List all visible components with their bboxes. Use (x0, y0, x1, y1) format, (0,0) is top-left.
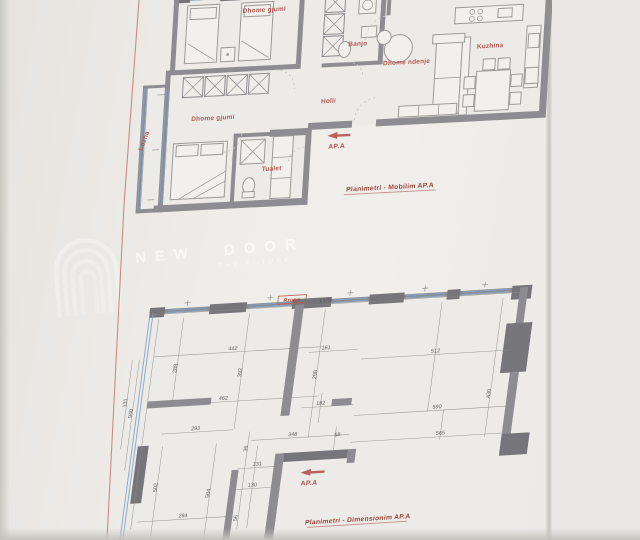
floor-plan-photo: NEW DOOR THE FUTURE (0, 0, 640, 540)
room-label: Holli (321, 98, 336, 106)
svg-text:Rruga: Rruga (283, 297, 301, 304)
dimension-text: 462 (218, 396, 228, 403)
dimension-text: 288 (172, 364, 179, 373)
dimension-text: 182 (316, 400, 326, 407)
single-bed (184, 4, 219, 64)
dimension-text: 56 (233, 515, 240, 521)
entrance-marker: AP.A (326, 131, 350, 151)
floor-plan-furnished: AP.A Dhome gjumiBanjoDhome ndenjeKuzhina… (134, 0, 558, 214)
dimension-text: 590 (432, 404, 442, 411)
rooms-background (116, 287, 531, 540)
floor-plan-dimensioned: Rruga AP.A 13794421615122883922984304621… (101, 278, 550, 540)
dimension-text: 442 (228, 346, 238, 353)
dimension-text: 161 (321, 345, 331, 352)
dimension-text: 293 (191, 426, 201, 433)
tv-cabinet (398, 103, 457, 117)
dimension-text: 131 (252, 461, 262, 468)
dimension-text: 348 (288, 432, 298, 439)
sink (361, 26, 377, 38)
dimension-text: 1379 (319, 298, 332, 305)
dimension-text: 512 (431, 348, 441, 355)
washing-machine (359, 0, 377, 14)
shower (240, 139, 265, 164)
photo-left-vignette (0, 0, 10, 540)
dimension-text: 284 (178, 513, 188, 520)
dimension-text: 565 (435, 431, 445, 438)
entrance-label: AP.A (300, 480, 318, 488)
entrance-arrow-icon (327, 132, 337, 140)
double-bed (170, 141, 227, 200)
room-label: Kuzhina (477, 42, 504, 50)
dimension-text: 504 (205, 488, 212, 497)
room-label: Banjo (348, 40, 367, 48)
dimension-text: 68 (334, 432, 341, 438)
dimension-text: 940 (128, 409, 135, 418)
plan-caption: Planimetri - Mobilim AP.A (344, 182, 436, 195)
dimension-text: 130 (247, 482, 257, 489)
entrance-label: AP.A (328, 143, 345, 151)
paper-edge-band (552, 0, 640, 540)
dimension-text: 392 (237, 368, 244, 377)
dimension-text: 36 (243, 445, 250, 451)
nightstand (220, 47, 235, 62)
room-label: Tualet (261, 165, 282, 173)
plans-canvas: AP.A Dhome gjumiBanjoDhome ndenjeKuzhina… (0, 0, 640, 540)
photo-bottom-vignette (0, 528, 640, 540)
dimension-text: 430 (486, 389, 493, 398)
dimension-text: 131 (122, 398, 129, 407)
dimension-text: 298 (312, 370, 319, 379)
dimension-text: 502 (152, 483, 159, 492)
